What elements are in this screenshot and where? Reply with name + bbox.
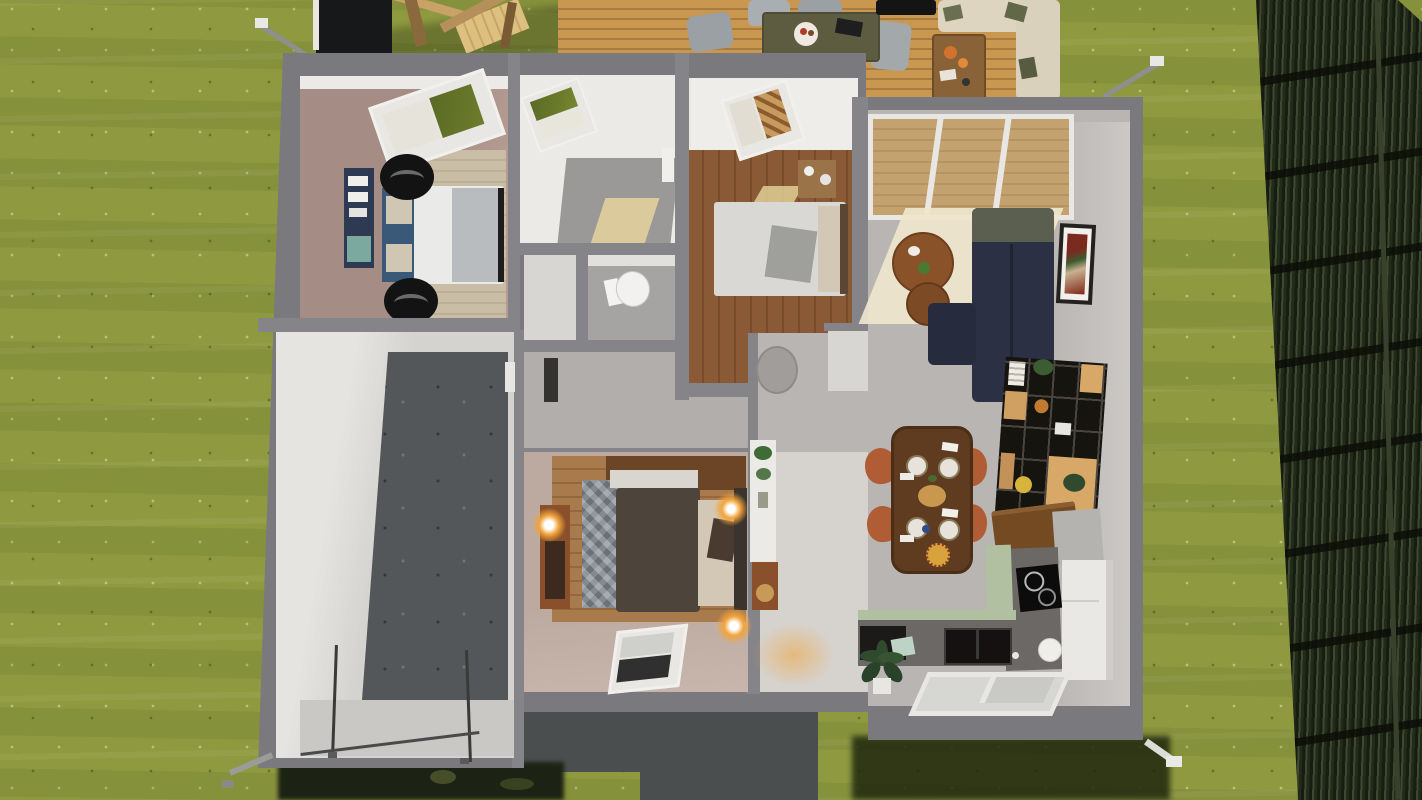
towel bbox=[348, 176, 368, 186]
bed-sheet-edge bbox=[610, 470, 698, 488]
plant bbox=[754, 446, 772, 460]
garage-side-door bbox=[505, 362, 515, 392]
cooktop-ring bbox=[1037, 587, 1057, 607]
entry-alcove bbox=[828, 327, 868, 391]
dining-table bbox=[891, 426, 973, 574]
wc-wall-strip bbox=[588, 255, 677, 266]
kettle bbox=[1038, 638, 1062, 662]
house-shadow-right-wing bbox=[852, 736, 1170, 800]
outdoor-coffee-table bbox=[932, 34, 986, 102]
lamp-glow-floor bbox=[752, 622, 836, 688]
food bbox=[800, 28, 807, 35]
sofa-pillow bbox=[1018, 57, 1037, 79]
closet-floor bbox=[524, 255, 576, 340]
dresser-lamp bbox=[804, 166, 814, 176]
black-round-chair bbox=[380, 154, 434, 200]
wall bbox=[508, 53, 520, 325]
wall-lamp-glowing bbox=[532, 508, 566, 542]
potted-plant bbox=[856, 640, 908, 696]
platter bbox=[918, 485, 946, 507]
storage-box bbox=[347, 236, 371, 262]
plate bbox=[938, 457, 960, 479]
downpipe-top-left bbox=[261, 24, 309, 58]
kitchen-cabinet-green-right bbox=[985, 545, 1013, 616]
garage-door-bracket bbox=[460, 758, 469, 764]
picture-art bbox=[1064, 234, 1087, 295]
downpipe-bottom-right-end bbox=[1166, 756, 1182, 767]
food-bowl bbox=[958, 58, 968, 68]
kitchen-sink bbox=[944, 628, 1012, 665]
napkin bbox=[942, 508, 959, 518]
black-shed bbox=[316, 0, 392, 53]
conservatory-roof bbox=[868, 114, 1074, 220]
conservatory-mullion bbox=[992, 115, 1012, 215]
wall bbox=[748, 333, 758, 453]
herbs bbox=[928, 475, 937, 482]
bed-master bbox=[370, 186, 504, 286]
knob bbox=[1012, 652, 1019, 659]
shelf-bowl-yellow bbox=[1014, 476, 1032, 494]
cup bbox=[908, 246, 920, 256]
dresser-mirror bbox=[820, 174, 831, 185]
roof-window-pane bbox=[985, 677, 1055, 703]
shed-corner-post bbox=[313, 0, 319, 50]
fridge-divider bbox=[1062, 600, 1099, 602]
plant-small bbox=[918, 262, 930, 274]
plate bbox=[794, 22, 818, 46]
towel bbox=[348, 192, 368, 202]
sofa-chaise bbox=[928, 303, 976, 365]
plate bbox=[938, 519, 960, 541]
wall bbox=[682, 383, 754, 397]
food bbox=[808, 30, 814, 36]
deck-chair bbox=[686, 11, 735, 53]
moss-spot bbox=[500, 778, 534, 790]
chair-arm bbox=[390, 170, 424, 188]
roof-window-pane-glass bbox=[616, 655, 671, 683]
grill bbox=[876, 0, 936, 15]
bed-headboard bbox=[840, 204, 848, 294]
wall bbox=[576, 248, 588, 352]
downpipe-top-right-end bbox=[1150, 56, 1164, 66]
downpipe-top-left-end bbox=[255, 18, 268, 28]
wardrobe-mirror bbox=[545, 541, 565, 599]
deco-blue bbox=[922, 525, 930, 533]
towel bbox=[349, 208, 367, 217]
pot bbox=[873, 678, 891, 694]
bed-frame-edge bbox=[498, 188, 504, 282]
corridor-doorway-niche bbox=[544, 358, 558, 402]
napkin bbox=[900, 535, 914, 542]
bed-guest bbox=[714, 202, 846, 296]
shelf-plant bbox=[1033, 359, 1054, 376]
bed-blanket-crumpled bbox=[765, 225, 818, 283]
pizza bbox=[926, 543, 950, 567]
deco bbox=[962, 78, 970, 86]
downpipe-bottom-left-end bbox=[222, 780, 233, 788]
gray-cabinet bbox=[1052, 508, 1104, 565]
render-viewport[interactable] bbox=[0, 0, 1422, 800]
roof-window-dark bbox=[608, 624, 688, 695]
bed-cushion bbox=[386, 196, 412, 224]
bar-cart bbox=[752, 562, 778, 610]
wall-lamp-glowing bbox=[716, 608, 752, 644]
chair-arm bbox=[394, 294, 428, 312]
dish bbox=[939, 69, 956, 81]
bed-dark-duvet bbox=[616, 488, 700, 612]
bed-blanket bbox=[452, 188, 502, 282]
wall bbox=[852, 97, 868, 337]
tray bbox=[835, 18, 863, 37]
wall bbox=[518, 340, 678, 352]
fridge bbox=[1062, 560, 1113, 680]
wall bbox=[518, 243, 678, 255]
wall-picture bbox=[1056, 223, 1096, 305]
shelf-dish bbox=[1055, 422, 1072, 435]
bed-cushion bbox=[386, 244, 412, 272]
cooktop bbox=[1016, 564, 1062, 612]
napkin bbox=[942, 442, 959, 452]
shelf-bowl bbox=[1034, 399, 1049, 414]
roof-window bbox=[908, 672, 1072, 716]
shelf-box-wood bbox=[1080, 364, 1104, 393]
round-side-table bbox=[756, 346, 798, 394]
entry-alcove-cap bbox=[824, 323, 872, 331]
shelving-unit bbox=[994, 357, 1107, 528]
shelf-box-wood bbox=[1004, 391, 1028, 420]
moss-spot bbox=[430, 770, 456, 784]
sofa-headrest bbox=[972, 208, 1054, 242]
bar-cart-tray bbox=[756, 584, 774, 602]
garage-door-bracket bbox=[328, 752, 337, 758]
zigzag-blanket bbox=[582, 480, 620, 608]
sink-divider bbox=[976, 630, 979, 659]
shelf-books bbox=[1008, 361, 1026, 386]
bottles bbox=[758, 492, 768, 508]
shower-glass-edge bbox=[662, 148, 674, 182]
plant bbox=[756, 468, 771, 480]
conservatory-mullion bbox=[924, 115, 944, 215]
food-bowl bbox=[944, 46, 957, 59]
wall-lamp-glowing bbox=[714, 492, 748, 526]
napkin bbox=[900, 473, 914, 480]
sideboard bbox=[750, 440, 776, 562]
wall bbox=[258, 318, 520, 332]
dresser bbox=[798, 160, 836, 198]
play-platform bbox=[454, 0, 529, 54]
shelf-box-wood bbox=[999, 453, 1015, 490]
downpipe-top-right bbox=[1103, 62, 1159, 98]
